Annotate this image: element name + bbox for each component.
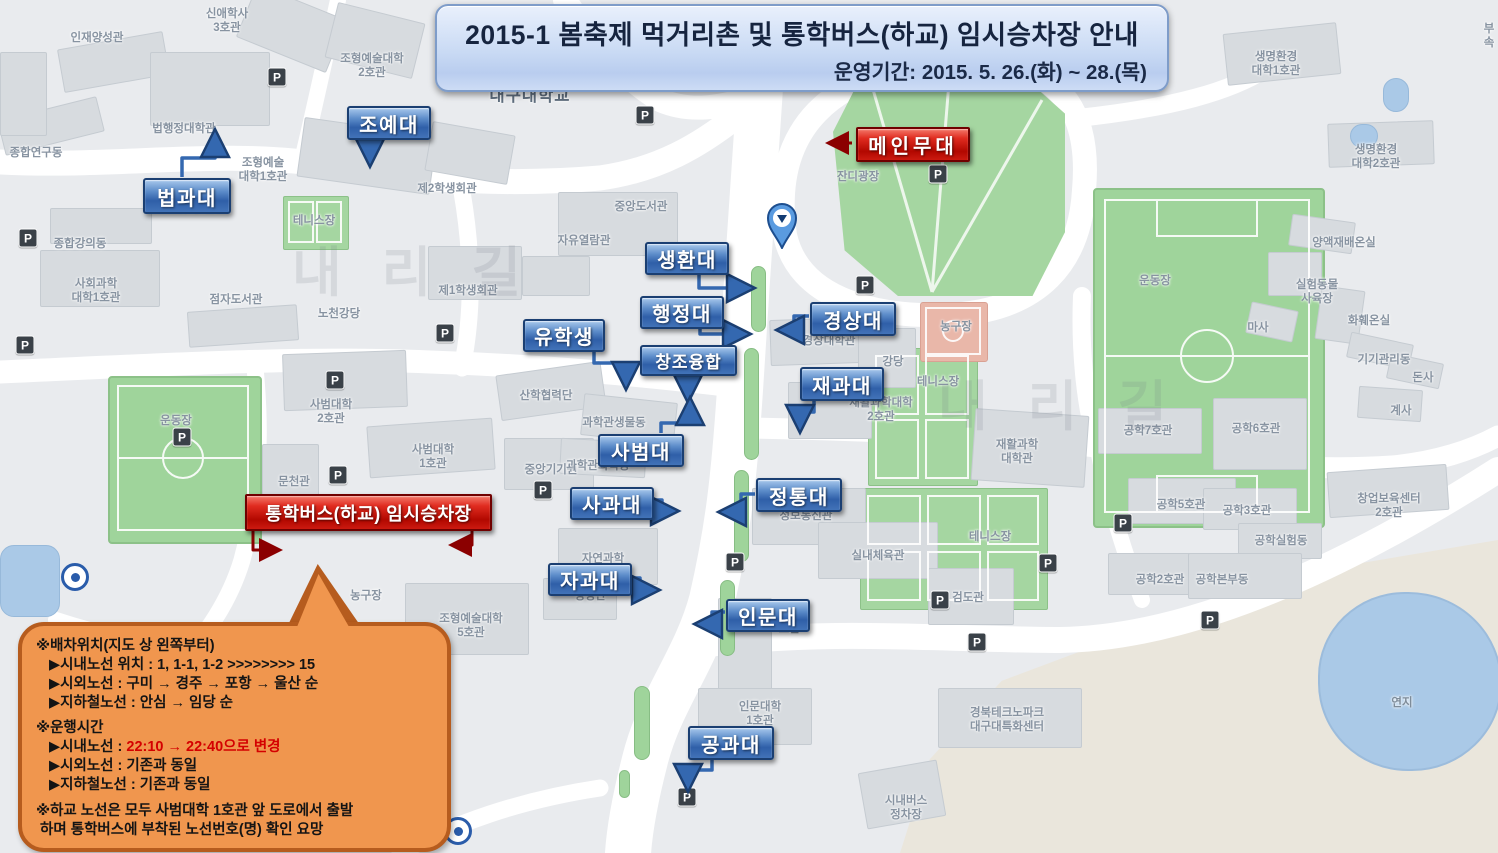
notice-item: ▶시내노선 : 22:10 → 22:40으로 변경	[36, 738, 435, 757]
college-label: 조예대	[347, 106, 431, 140]
callout-arrow	[661, 404, 690, 433]
college-label: 재과대	[800, 367, 884, 401]
callout-arrow	[629, 578, 653, 590]
notice-section: ※하교 노선은 모두 사범대학 1호관 앞 도로에서 출발 하며 통학버스에 부…	[36, 802, 435, 840]
notice-section-header: ※배차위치(지도 상 왼쪽부터)	[36, 637, 435, 656]
college-label: 유학생	[523, 319, 605, 352]
notice-section: ※배차위치(지도 상 왼쪽부터)▶시내노선 위치 : 1, 1-1, 1-2 >…	[36, 637, 435, 712]
notice-bubble: ※배차위치(지도 상 왼쪽부터)▶시내노선 위치 : 1, 1-1, 1-2 >…	[18, 622, 451, 852]
notice-item: ▶시외노선 : 구미 → 경주 → 포항 → 울산 순	[36, 675, 435, 694]
college-label: 생환대	[645, 242, 729, 275]
callout-arrow	[182, 136, 215, 177]
college-label: 경상대	[810, 302, 896, 336]
notice-highlight: 22:10 → 22:40으로 변경	[126, 739, 280, 755]
notice-section: ※운행시간▶시내노선 : 22:10 → 22:40으로 변경▶시외노선 : 기…	[36, 719, 435, 794]
notice-item: ▶지하철노선 : 안심 → 임당 순	[36, 694, 435, 713]
main-stage-label: 메인무대	[856, 127, 970, 162]
college-label: 자과대	[548, 563, 632, 596]
college-label: 인문대	[726, 599, 810, 632]
callout-arrow	[651, 500, 672, 511]
callout-arrow	[701, 612, 725, 624]
callout-arrow	[688, 757, 712, 785]
callout-arrow	[783, 316, 809, 330]
notice-section-header: ※하교 노선은 모두 사범대학 1호관 앞 도로에서 출발 하며 통학버스에 부…	[36, 802, 435, 840]
notice-item: ▶시내노선 위치 : 1, 1-1, 1-2 >>>>>>>> 15	[36, 656, 435, 675]
notice-text: ※배차위치(지도 상 왼쪽부터)▶시내노선 위치 : 1, 1-1, 1-2 >…	[22, 626, 447, 853]
notice-item: ▶지하철노선 : 기존과 동일	[36, 776, 435, 795]
callout-arrow	[725, 494, 755, 512]
college-label: 공과대	[688, 726, 774, 760]
college-label: 법과대	[143, 178, 231, 214]
campus-map: 메인무대 통학버스(하교) 임시승차장 2015-1 봄축제 먹거리촌 및 통학…	[0, 0, 1498, 853]
college-label: 사범대	[598, 434, 684, 467]
college-label: 창조융합	[640, 345, 737, 376]
banner-title: 2015-1 봄축제 먹거리촌 및 통학버스(하교) 임시승차장 안내	[437, 13, 1167, 52]
shuttle-bus-stop-label: 통학버스(하교) 임시승차장	[245, 494, 492, 531]
callout-arrow	[800, 398, 814, 426]
college-label: 사과대	[570, 487, 654, 520]
callout-arrow	[253, 528, 277, 550]
banner-operating-period: 운영기간: 2015. 5. 26.(화) ~ 28.(목)	[437, 55, 1167, 85]
title-banner: 2015-1 봄축제 먹거리촌 및 통학버스(하교) 임시승차장 안내 운영기간…	[435, 4, 1169, 92]
notice-section-header: ※운행시간	[36, 719, 435, 738]
callout-arrow	[594, 349, 626, 383]
notice-item: ▶시외노선 : 기존과 동일	[36, 757, 435, 776]
college-label: 행정대	[640, 296, 724, 329]
college-label: 정통대	[756, 478, 842, 512]
